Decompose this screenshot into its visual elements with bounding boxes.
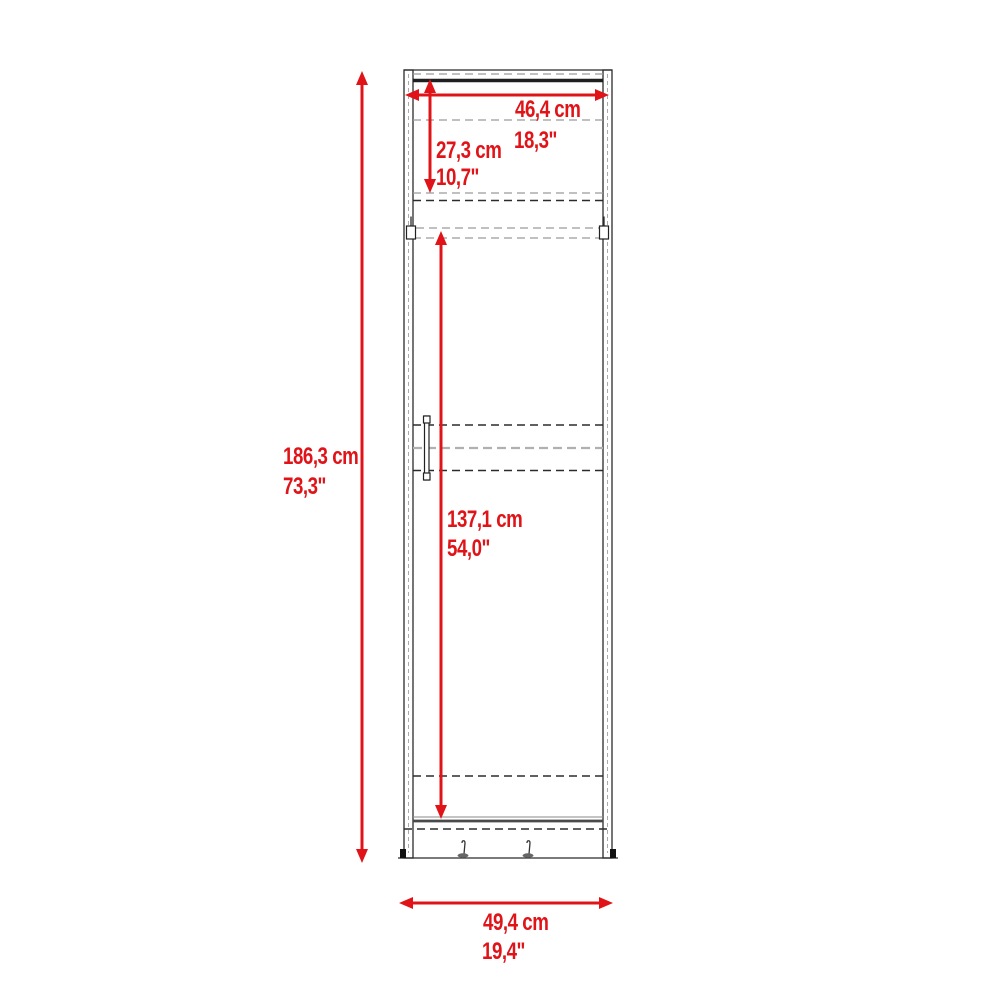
overall-width-inch-label: 19,4" <box>482 938 525 965</box>
overall-width-cm-label: 49,4 cm <box>483 909 548 936</box>
lower-section-inch-label: 54,0" <box>447 535 490 562</box>
arrowhead-left-icon <box>399 897 413 909</box>
dimension-arrowheads <box>356 71 613 909</box>
arrowhead-up-icon <box>356 71 368 85</box>
diagram-canvas: 186,3 cm 73,3" 46,4 cm 18,3" 27,3 cm 10,… <box>0 0 1000 1000</box>
wardrobe-dimension-diagram: 186,3 cm 73,3" 46,4 cm 18,3" 27,3 cm 10,… <box>0 0 1000 1000</box>
overall-height-cm-label: 186,3 cm <box>283 443 358 470</box>
arrowhead-left-icon <box>405 89 419 101</box>
center-glide-1 <box>458 841 469 858</box>
door-handle-bottom-cap <box>424 473 431 480</box>
inner-width-cm-label: 46,4 cm <box>515 96 580 123</box>
right-foot <box>610 849 616 858</box>
door-handle-top-cap <box>424 416 431 423</box>
lower-section-cm-label: 137,1 cm <box>447 506 522 533</box>
right-rod-bracket <box>600 226 609 239</box>
arrowhead-down-icon <box>424 179 436 193</box>
arrowhead-right-icon <box>599 897 613 909</box>
left-foot <box>400 849 406 858</box>
dimension-lines <box>362 84 600 903</box>
upper-section-cm-label: 27,3 cm <box>436 137 501 164</box>
overall-height-inch-label: 73,3" <box>283 473 326 500</box>
center-glide-2 <box>523 841 534 858</box>
upper-section-inch-label: 10,7" <box>436 164 479 191</box>
left-rod-bracket <box>407 226 416 239</box>
dimension-labels: 186,3 cm 73,3" 46,4 cm 18,3" 27,3 cm 10,… <box>283 96 580 965</box>
inner-width-inch-label: 18,3" <box>514 127 557 154</box>
door-handle <box>425 416 430 480</box>
arrowhead-down-icon <box>356 849 368 863</box>
arrowhead-right-icon <box>595 89 609 101</box>
